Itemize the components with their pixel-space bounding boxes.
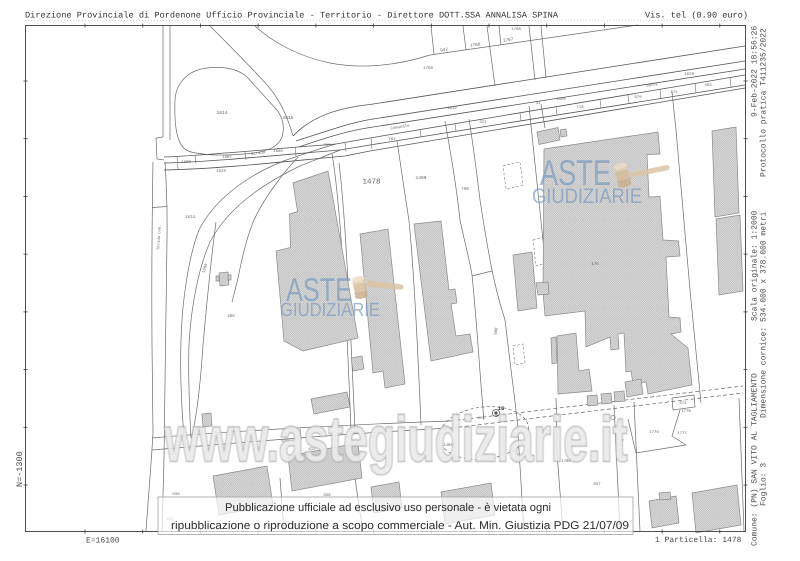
svg-text:571: 571 xyxy=(671,90,679,95)
svg-text:708: 708 xyxy=(461,187,469,192)
svg-text:718: 718 xyxy=(576,105,584,110)
svg-text:Vis. tel (0.90 euro): Vis. tel (0.90 euro) xyxy=(645,11,748,21)
svg-text:1629: 1629 xyxy=(684,72,695,77)
svg-text:Scala originale: 1:2000: Scala originale: 1:2000 xyxy=(751,210,760,321)
svg-text:1612: 1612 xyxy=(447,106,457,111)
svg-text:E=16100: E=16100 xyxy=(86,537,120,546)
svg-text:453: 453 xyxy=(704,83,712,88)
svg-text:1778: 1778 xyxy=(681,409,691,414)
svg-text:1768: 1768 xyxy=(511,27,521,32)
svg-text:1606: 1606 xyxy=(273,149,283,154)
svg-text:GIUDIZIARIE: GIUDIZIARIE xyxy=(532,185,642,208)
svg-text:175: 175 xyxy=(591,262,599,267)
svg-text:Comune: (PN) SAN VITO AL TAGLI: Comune: (PN) SAN VITO AL TAGLIAMENTO xyxy=(751,373,760,546)
svg-text:1608: 1608 xyxy=(181,160,191,165)
svg-text:1624: 1624 xyxy=(185,215,196,220)
svg-text:Foglio: 3: Foglio: 3 xyxy=(760,463,769,506)
svg-text:1609: 1609 xyxy=(556,97,566,102)
svg-text:1607: 1607 xyxy=(222,155,232,160)
svg-text:1625: 1625 xyxy=(216,169,227,174)
svg-text:1478: 1478 xyxy=(362,178,380,187)
svg-text:837: 837 xyxy=(593,482,601,487)
svg-text:9-Feb-2022 18:56:26: 9-Feb-2022 18:56:26 xyxy=(751,26,760,117)
svg-text:1489: 1489 xyxy=(415,175,426,181)
svg-text:www.astegiudiziarie.it: www.astegiudiziarie.it xyxy=(164,403,628,475)
svg-text:Dimensione cornice: 534.000 x: Dimensione cornice: 534.000 x 378.000 me… xyxy=(760,211,769,418)
svg-text:406: 406 xyxy=(227,314,235,319)
svg-text:GIUDIZIARIE: GIUDIZIARIE xyxy=(280,300,380,321)
svg-text:321: 321 xyxy=(479,120,487,125)
svg-text:1769: 1769 xyxy=(423,66,434,71)
svg-text:1779: 1779 xyxy=(649,430,659,435)
svg-text:579: 579 xyxy=(634,95,642,100)
svg-text:713: 713 xyxy=(323,143,331,148)
svg-text:1777: 1777 xyxy=(677,431,687,436)
svg-text:574: 574 xyxy=(679,401,687,406)
svg-text:Pubblicazione ufficiale ad esc: Pubblicazione ufficiale ad esclusivo uso… xyxy=(225,502,551,514)
svg-text:Protocollo pratica T411235/202: Protocollo pratica T411235/2022 xyxy=(760,28,769,177)
svg-text:ripubblicazione o riproduzione: ripubblicazione o riproduzione a scopo c… xyxy=(171,520,629,532)
svg-text:1 Particella: 1478: 1 Particella: 1478 xyxy=(655,536,742,545)
svg-text:636: 636 xyxy=(172,492,180,497)
svg-text:702: 702 xyxy=(388,137,396,142)
svg-text:N=-1300: N=-1300 xyxy=(15,451,25,487)
svg-text:Direzione Provinciale di Porde: Direzione Provinciale di Pordenone Uffic… xyxy=(25,11,559,21)
svg-text:41: 41 xyxy=(536,101,541,106)
svg-text:1614: 1614 xyxy=(216,110,227,116)
svg-text:1615: 1615 xyxy=(282,115,293,121)
